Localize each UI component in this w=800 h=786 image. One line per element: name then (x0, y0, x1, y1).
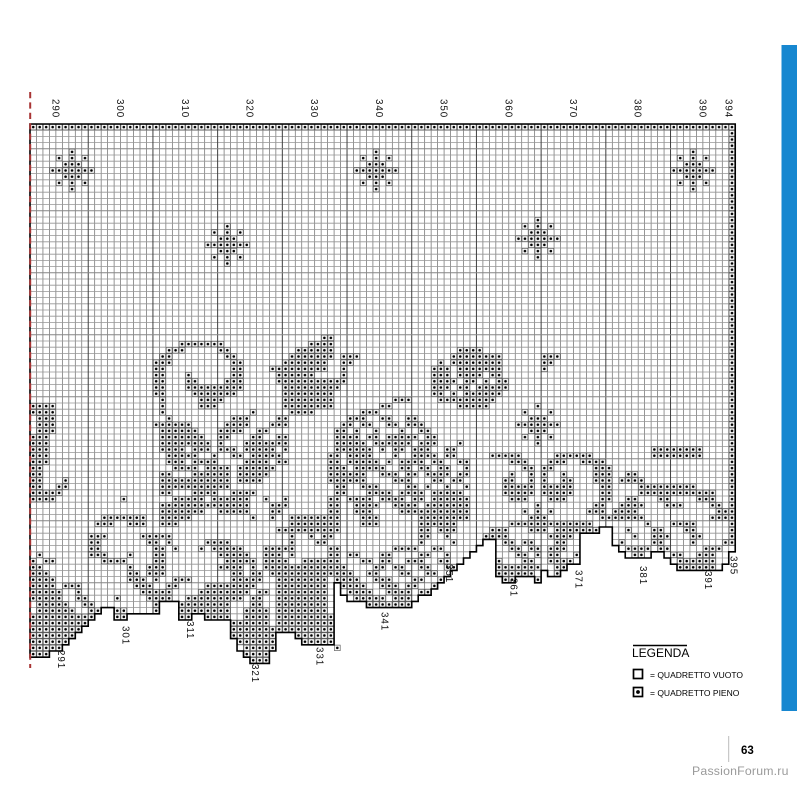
svg-text:351: 351 (443, 564, 454, 583)
svg-text:380: 380 (632, 99, 643, 118)
svg-text:360: 360 (502, 99, 513, 118)
svg-text:391: 391 (702, 571, 713, 590)
svg-text:370: 370 (567, 99, 578, 118)
svg-text:63: 63 (741, 745, 754, 757)
svg-text:395: 395 (728, 556, 739, 575)
svg-text:361: 361 (508, 578, 519, 597)
svg-text:290: 290 (49, 99, 60, 118)
svg-text:340: 340 (373, 99, 384, 118)
svg-text:311: 311 (184, 621, 195, 639)
svg-text:350: 350 (438, 99, 449, 118)
svg-text:390: 390 (696, 99, 707, 118)
svg-text:331: 331 (314, 647, 325, 666)
svg-text:341: 341 (378, 612, 389, 631)
svg-text:300: 300 (114, 99, 125, 118)
svg-text:LEGENDA: LEGENDA (632, 646, 689, 660)
svg-text:PassionForum.ru: PassionForum.ru (692, 764, 789, 778)
svg-text:381: 381 (637, 566, 648, 585)
svg-text:= QUADRETTO PIENO: = QUADRETTO PIENO (650, 688, 740, 698)
svg-text:291: 291 (55, 650, 66, 669)
svg-text:320: 320 (244, 99, 255, 118)
svg-text:310: 310 (179, 99, 190, 118)
svg-text:394: 394 (722, 99, 733, 118)
svg-text:330: 330 (308, 99, 319, 118)
svg-text:371: 371 (572, 570, 583, 589)
svg-text:= QUADRETTO VUOTO: = QUADRETTO VUOTO (650, 670, 743, 680)
svg-text:321: 321 (249, 664, 260, 683)
svg-text:301: 301 (120, 626, 131, 645)
